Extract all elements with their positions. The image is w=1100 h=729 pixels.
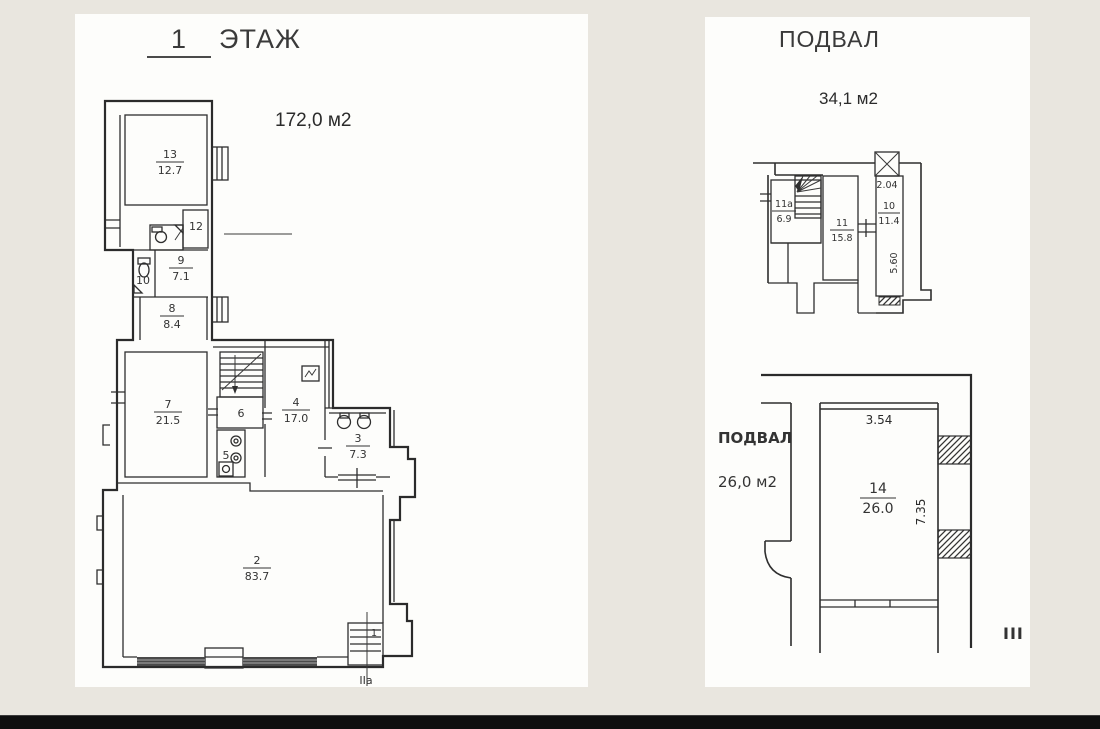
wc-fixtures-icon — [217, 430, 245, 477]
svg-text:11: 11 — [836, 218, 848, 229]
svg-text:26.0: 26.0 — [862, 501, 893, 517]
svg-text:12.7: 12.7 — [158, 164, 183, 177]
basement-stairs-icon — [795, 176, 821, 218]
room-7-label: 7 21.5 — [154, 398, 182, 427]
svg-text:14: 14 — [869, 481, 887, 497]
svg-text:8.4: 8.4 — [163, 318, 181, 331]
basins-icon — [338, 413, 371, 429]
dim-3-54-label: 3.54 — [866, 413, 893, 427]
svg-text:13: 13 — [163, 148, 177, 161]
svg-text:17.0: 17.0 — [284, 412, 309, 425]
basement-lower-title: ПОДВАЛ — [718, 429, 792, 447]
basement-plan: 11а 6.9 11 15.8 10 11.4 2.04 5.60 ПОДВАЛ — [705, 17, 1030, 687]
svg-text:8: 8 — [169, 302, 176, 315]
svg-text:6.9: 6.9 — [776, 214, 791, 225]
room-10-label: 10 — [136, 274, 150, 287]
first-floor-sheet: 1 ЭТАЖ 172,0 м2 — [75, 14, 588, 687]
room-6-label: 6 — [238, 407, 245, 420]
svg-text:21.5: 21.5 — [156, 414, 181, 427]
room-11a-label: 11а 6.9 — [772, 199, 796, 225]
room-4-label: 4 17.0 — [282, 396, 310, 425]
room-8-label: 8 8.4 — [160, 302, 184, 331]
bathroom-fixtures-icon — [152, 225, 183, 243]
room-5-label: 5 — [223, 449, 230, 462]
svg-text:2: 2 — [254, 554, 261, 567]
svg-text:10: 10 — [883, 201, 895, 212]
room-1-label: 1 — [371, 628, 377, 639]
svg-text:7.1: 7.1 — [172, 270, 190, 283]
room-12-label: 12 — [189, 220, 203, 233]
basement-sheet: ПОДВАЛ 34,1 м2 — [705, 17, 1030, 687]
dim-2-04-label: 2.04 — [876, 180, 897, 191]
stairs-icon — [220, 352, 263, 397]
entrance-mark-label: IIa — [359, 674, 372, 687]
first-floor-plan: 13 12.7 12 10 9 7.1 8 8.4 7 21.5 6 5 4 1… — [75, 14, 588, 687]
svg-text:11а: 11а — [775, 199, 793, 210]
svg-text:83.7: 83.7 — [245, 570, 270, 583]
svg-text:7: 7 — [165, 398, 172, 411]
room-11-label: 11 15.8 — [830, 218, 854, 244]
section-mark-label: III — [1003, 624, 1024, 643]
svg-text:7.3: 7.3 — [349, 448, 367, 461]
meter-icon — [302, 366, 319, 381]
svg-text:15.8: 15.8 — [831, 233, 852, 244]
storefront-windows — [137, 657, 317, 666]
room-13-label: 13 12.7 — [156, 148, 184, 177]
room-14-label: 14 26.0 — [860, 481, 896, 517]
svg-text:3: 3 — [355, 432, 362, 445]
room-10b-label: 10 11.4 — [878, 201, 900, 227]
svg-text:4: 4 — [293, 396, 300, 409]
svg-text:11.4: 11.4 — [878, 216, 899, 227]
bottom-black-bar — [0, 715, 1100, 729]
room-3-label: 3 7.3 — [346, 432, 370, 461]
basement-lower-area: 26,0 м2 — [718, 473, 777, 491]
svg-text:9: 9 — [178, 254, 185, 267]
room-2-label: 2 83.7 — [243, 554, 271, 583]
room-9-label: 9 7.1 — [169, 254, 193, 283]
dim-7-35-label: 7.35 — [914, 499, 928, 526]
dim-5-60-label: 5.60 — [889, 252, 900, 273]
